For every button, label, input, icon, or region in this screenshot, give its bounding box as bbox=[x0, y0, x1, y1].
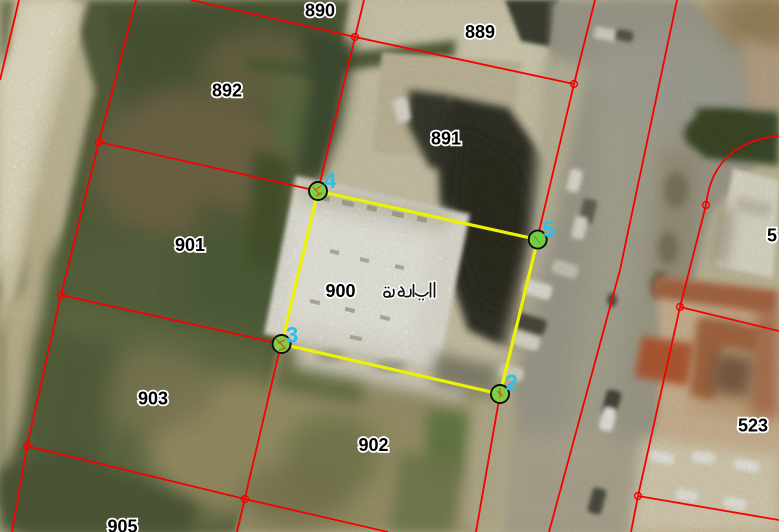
svg-text:889: 889 bbox=[465, 22, 495, 42]
svg-text:901: 901 bbox=[175, 235, 205, 255]
svg-text:905: 905 bbox=[107, 517, 137, 532]
svg-text:902: 902 bbox=[358, 435, 388, 455]
svg-text:4: 4 bbox=[324, 168, 337, 193]
svg-text:900: 900 bbox=[325, 281, 355, 301]
svg-text:890: 890 bbox=[305, 1, 335, 21]
svg-text:891: 891 bbox=[431, 129, 461, 149]
svg-text:892: 892 bbox=[212, 81, 242, 101]
svg-text:5: 5 bbox=[543, 217, 555, 242]
svg-text:5: 5 bbox=[767, 226, 777, 246]
svg-text:3: 3 bbox=[286, 323, 298, 348]
svg-text:2: 2 bbox=[506, 370, 518, 395]
svg-text:903: 903 bbox=[138, 389, 168, 409]
svg-text:523: 523 bbox=[738, 416, 768, 436]
